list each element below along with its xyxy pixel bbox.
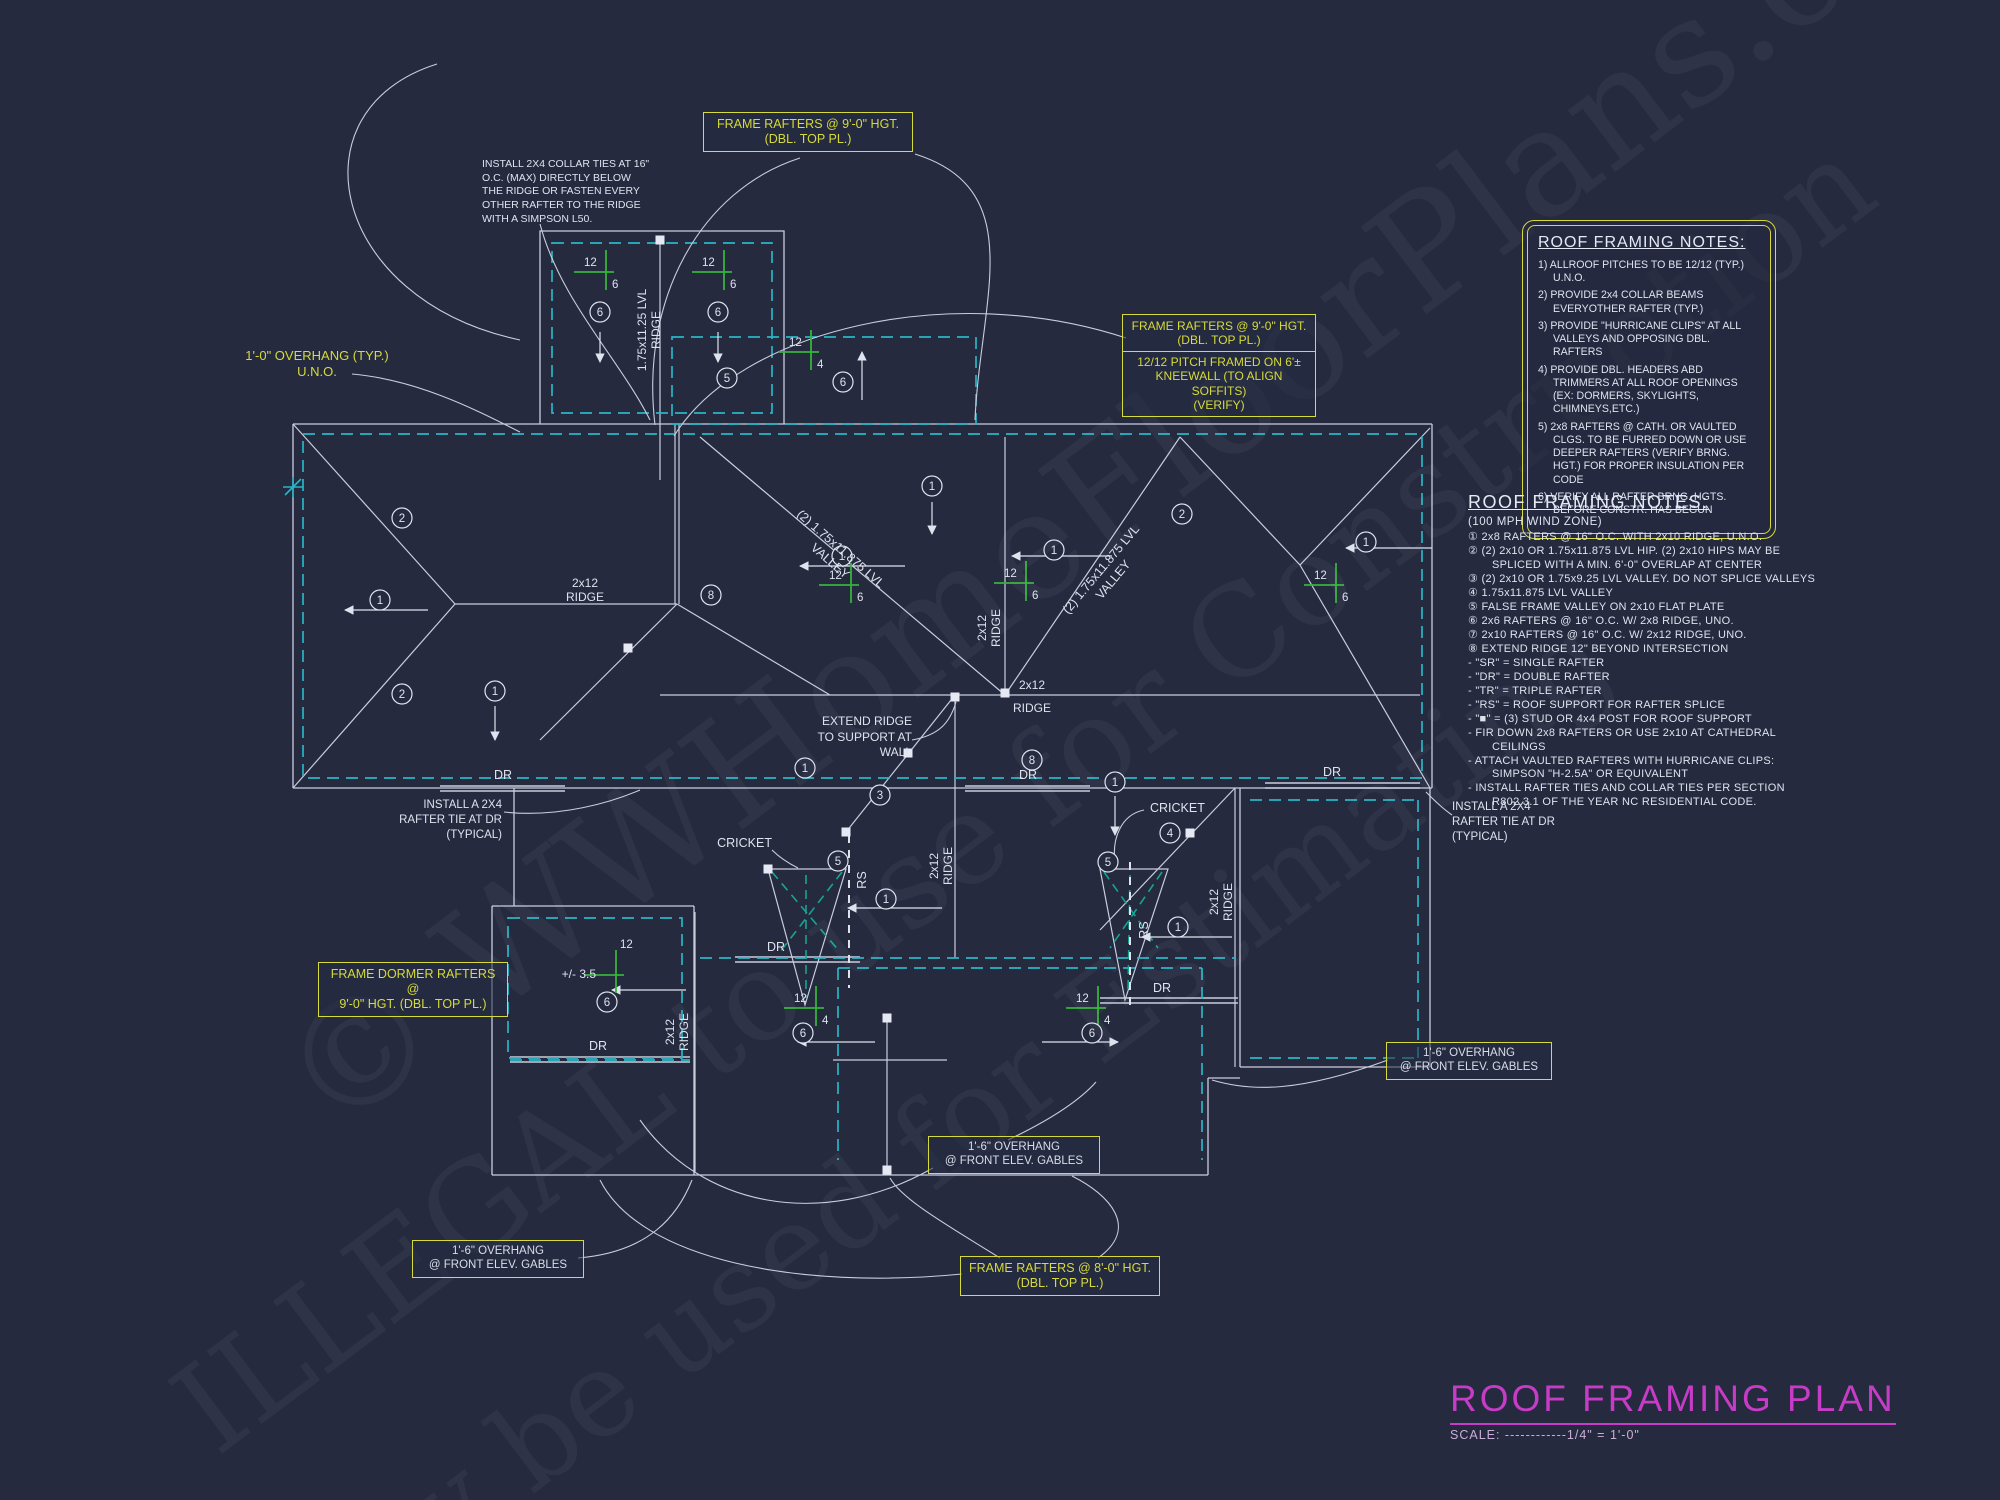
double-rafter-label: DR	[1019, 768, 1037, 782]
callout-frame-rafters-right: FRAME RAFTERS @ 9'-0" HGT. (DBL. TOP PL.…	[1122, 314, 1316, 417]
notes-list-item: - "TR" = TRIPLE RAFTER	[1468, 685, 1830, 699]
note-line: RAFTER TIE AT DR	[374, 813, 502, 828]
callout-line: (DBL. TOP PL.)	[1129, 333, 1309, 347]
notes-list-item: ⑧ EXTEND RIDGE 12" BEYOND INTERSECTION	[1468, 643, 1830, 657]
ridge-label: 2x12	[927, 853, 941, 879]
cricket-framing-dashed	[772, 872, 1162, 998]
double-rafter-label: DR	[1153, 981, 1171, 995]
overhang-typ-line2: U.N.O.	[228, 364, 406, 380]
ref-1: 1	[377, 595, 383, 607]
ridge-label: RIDGE	[989, 609, 1003, 647]
collar-ties-note: INSTALL 2X4 COLLAR TIES AT 16" O.C. (MAX…	[482, 158, 654, 226]
double-rafter-label: DR	[589, 1039, 607, 1053]
notes-list-item: ① 2x8 RAFTERS @ 16" O.C. WITH 2x10 RIDGE…	[1468, 531, 1830, 545]
notes-list-item: ⑥ 2x6 RAFTERS @ 16" O.C. W/ 2x8 RIDGE, U…	[1468, 615, 1830, 629]
pitch-rise-label: 12	[789, 337, 802, 349]
ref-1: 1	[802, 763, 808, 775]
notes-list-item: - "■" = (3) STUD OR 4x4 POST FOR ROOF SU…	[1468, 713, 1830, 727]
callout-line: 1'-6" OVERHANG	[1393, 1047, 1545, 1061]
extend-ridge-note: EXTEND RIDGE TO SUPPORT AT WALL	[790, 714, 912, 761]
callout-line: (VERIFY)	[1129, 398, 1309, 412]
note-line: TO SUPPORT AT	[790, 730, 912, 746]
ref-1: 1	[929, 481, 935, 493]
notes-list-item: ⑤ FALSE FRAME VALLEY ON 2x10 FLAT PLATE	[1468, 601, 1830, 615]
callout-divider	[1123, 351, 1315, 352]
notes-box-item: 2) PROVIDE 2x4 COLLAR BEAMS EVERYOTHER R…	[1538, 289, 1760, 315]
note-line: RAFTER TIE AT DR	[1452, 815, 1582, 830]
pitch-run-label: 4	[822, 1015, 829, 1027]
double-rafter-lines	[440, 783, 1420, 1062]
pitch-run-label: 6	[1342, 592, 1348, 604]
callout-line: @ FRONT ELEV. GABLES	[935, 1155, 1093, 1169]
callout-frame-rafters-top: FRAME RAFTERS @ 9'-0" HGT. (DBL. TOP PL.…	[703, 112, 913, 152]
roof-support-dashed	[849, 835, 1130, 1005]
callout-frame-dormer-rafters: FRAME DORMER RAFTERS @ 9'-0" HGT. (DBL. …	[318, 962, 508, 1017]
roof-support-label: RS	[1137, 921, 1151, 938]
ref-3: 3	[877, 790, 883, 802]
roof-support-posts	[624, 236, 1195, 1175]
ref-8: 8	[1029, 755, 1035, 767]
ref-6: 6	[840, 377, 846, 389]
roof-support-label: RS	[855, 871, 869, 888]
pitch-rise-label: 12	[1314, 570, 1327, 582]
ridge-label: RIDGE	[1013, 701, 1051, 715]
pitch-run-label: 6	[730, 279, 736, 291]
notes-box-item: 1) ALLROOF PITCHES TO BE 12/12 (TYP.) U.…	[1538, 259, 1760, 285]
note-line: (TYPICAL)	[1452, 830, 1582, 845]
notes-list-item: ④ 1.75x11.875 LVL VALLEY	[1468, 587, 1830, 601]
ridge-label: 2x12	[975, 615, 989, 641]
pitch-rise-label: 12	[1004, 568, 1017, 580]
ridge-label: 2x12	[1019, 678, 1045, 692]
callout-line: (DBL. TOP PL.)	[710, 132, 906, 147]
ref-5: 5	[1105, 857, 1111, 869]
ridge-label: RIDGE	[566, 590, 604, 604]
callout-line: FRAME RAFTERS @ 9'-0" HGT.	[710, 117, 906, 132]
pitch-rise-label: 12	[1076, 993, 1089, 1005]
double-rafter-label: DR	[494, 768, 512, 782]
ref-2: 2	[1179, 509, 1185, 521]
callout-line: FRAME DORMER RAFTERS @	[325, 967, 501, 997]
callout-line: 1'-6" OVERHANG	[935, 1141, 1093, 1155]
notes-list-item: - FIR DOWN 2x8 RAFTERS OR USE 2x10 AT CA…	[1468, 727, 1830, 755]
note-line: EXTEND RIDGE	[790, 714, 912, 730]
callout-line: (DBL. TOP PL.)	[967, 1276, 1153, 1291]
notes-list-item: - "RS" = ROOF SUPPORT FOR RAFTER SPLICE	[1468, 699, 1830, 713]
ref-1: 1	[1175, 922, 1181, 934]
notes-list-item: - "DR" = DOUBLE RAFTER	[1468, 671, 1830, 685]
pitch-rise-label: 12	[584, 257, 597, 269]
ref-6: 6	[715, 307, 721, 319]
notes-list-item: - "SR" = SINGLE RAFTER	[1468, 657, 1830, 671]
title-block: ROOF FRAMING PLAN SCALE: ------------1/4…	[1450, 1378, 1896, 1442]
roof-framing-notes-list: ROOF FRAMING NOTES: (100 MPH WIND ZONE) …	[1468, 492, 1830, 810]
overhang-typ-line1: 1'-0" OVERHANG (TYP.)	[228, 348, 406, 364]
ref-6: 6	[1089, 1028, 1095, 1040]
pitch-rise-label: 12	[620, 939, 633, 951]
notes-box-item: 5) 2x8 RAFTERS @ CATH. OR VAULTED CLGS. …	[1538, 421, 1760, 487]
sheet-title: ROOF FRAMING PLAN	[1450, 1378, 1896, 1425]
notes-list-item: ② (2) 2x10 OR 1.75x11.875 LVL HIP. (2) 2…	[1468, 545, 1830, 573]
ref-6: 6	[604, 997, 610, 1009]
kneewall-height-note: +/- 3.5	[562, 967, 597, 981]
callout-overhang-gables-right: 1'-6" OVERHANG @ FRONT ELEV. GABLES	[1386, 1042, 1552, 1080]
callout-line: @ FRONT ELEV. GABLES	[419, 1259, 577, 1273]
notes-box-title: ROOF FRAMING NOTES:	[1538, 234, 1760, 252]
notes-list-item: - ATTACH VAULTED RAFTERS WITH HURRICANE …	[1468, 755, 1830, 783]
pitch-rise-label: 12	[702, 257, 715, 269]
ridge-label: 2x12	[1207, 889, 1221, 915]
ridge-label: 2x12	[663, 1019, 677, 1045]
ref-1: 1	[1051, 545, 1057, 557]
double-rafter-label: DR	[767, 940, 785, 954]
ref-2: 2	[399, 689, 405, 701]
note-line: (TYPICAL)	[374, 828, 502, 843]
callout-line: 9'-0" HGT. (DBL. TOP PL.)	[325, 997, 501, 1012]
overhang-typ-note: 1'-0" OVERHANG (TYP.) U.N.O.	[228, 348, 406, 381]
note-line: WALL	[790, 745, 912, 761]
ref-5: 5	[835, 856, 841, 868]
ridge-label: RIDGE	[941, 847, 955, 885]
notes-box-item: 4) PROVIDE DBL. HEADERS ABD TRIMMERS AT …	[1538, 364, 1760, 417]
ref-6: 6	[597, 307, 603, 319]
ridge-label: RIDGE	[677, 1013, 691, 1051]
cricket-label: CRICKET	[717, 836, 772, 850]
notes-list-item: - INSTALL RAFTER TIES AND COLLAR TIES PE…	[1468, 782, 1830, 810]
ref-2: 2	[399, 513, 405, 525]
callout-frame-rafters-bottom: FRAME RAFTERS @ 8'-0" HGT. (DBL. TOP PL.…	[960, 1256, 1160, 1296]
ref-6: 6	[800, 1028, 806, 1040]
ref-1: 1	[1363, 537, 1369, 549]
callout-line: 12/12 PITCH FRAMED ON 6'±	[1129, 355, 1309, 369]
callout-line: FRAME RAFTERS @ 9'-0" HGT.	[1129, 319, 1309, 333]
rafter-tie-note-left: INSTALL A 2X4 RAFTER TIE AT DR (TYPICAL)	[374, 798, 502, 843]
pitch-run-label: 6	[1032, 590, 1038, 602]
pitch-run-label: 6	[612, 279, 618, 291]
callout-overhang-gables-left: 1'-6" OVERHANG @ FRONT ELEV. GABLES	[412, 1240, 584, 1278]
ref-1: 1	[492, 686, 498, 698]
notes-list-title: ROOF FRAMING NOTES:	[1468, 492, 1830, 513]
roof-framing-plan-sheet: 12 6 12 6 12 4 12 6 12 6 12 6 12 12 4 12…	[0, 0, 2000, 1500]
notes-list-subtitle: (100 MPH WIND ZONE)	[1468, 516, 1830, 528]
ridge-label: RIDGE	[1221, 883, 1235, 921]
ref-5: 5	[724, 373, 730, 385]
notes-list-item: ⑦ 2x10 RAFTERS @ 16" O.C. W/ 2x12 RIDGE,…	[1468, 629, 1830, 643]
ref-8: 8	[708, 590, 714, 602]
leader-lines	[348, 64, 1452, 1278]
ref-4: 4	[1167, 828, 1174, 840]
double-rafter-label: DR	[1323, 765, 1341, 779]
cricket-label: CRICKET	[1150, 801, 1205, 815]
notes-box-item: 3) PROVIDE "HURRICANE CLIPS" AT ALL VALL…	[1538, 320, 1760, 360]
pitch-run-label: 4	[817, 359, 824, 371]
callout-line: 1'-6" OVERHANG	[419, 1245, 577, 1259]
roof-framing-notes-box-inner: ROOF FRAMING NOTES: 1) ALLROOF PITCHES T…	[1527, 225, 1771, 534]
note-line: INSTALL A 2X4	[374, 798, 502, 813]
callout-line: @ FRONT ELEV. GABLES	[1393, 1061, 1545, 1075]
pitch-rise-label: 12	[794, 993, 807, 1005]
ridge-label: 2x12	[572, 576, 598, 590]
ref-1: 1	[883, 894, 889, 906]
lvl-ridge-label: RIDGE	[649, 311, 663, 349]
ref-1: 1	[1112, 777, 1118, 789]
pitch-run-label: 6	[857, 592, 863, 604]
callout-line: FRAME RAFTERS @ 8'-0" HGT.	[967, 1261, 1153, 1276]
pitch-run-label: 4	[1104, 1015, 1111, 1027]
callout-overhang-gables-center: 1'-6" OVERHANG @ FRONT ELEV. GABLES	[928, 1136, 1100, 1174]
lvl-ridge-label: 1.75x11.25 LVL	[635, 289, 649, 372]
callout-line: KNEEWALL (TO ALIGN SOFFITS)	[1129, 369, 1309, 398]
notes-list-item: ③ (2) 2x10 OR 1.75x9.25 LVL VALLEY. DO N…	[1468, 573, 1830, 587]
scale-label: SCALE: ------------1/4" = 1'-0"	[1450, 1428, 1896, 1442]
